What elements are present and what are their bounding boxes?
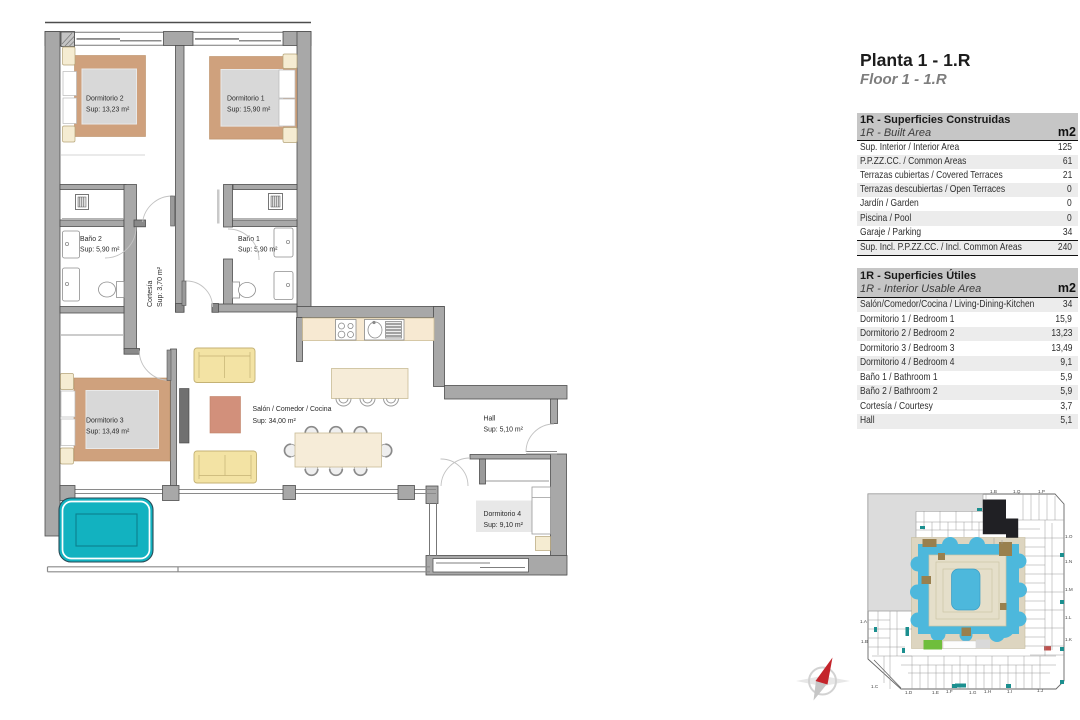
- svg-text:Sup: 13,49 m²: Sup: 13,49 m²: [86, 429, 130, 436]
- svg-text:Salón / Comedor / Cocina: Salón / Comedor / Cocina: [253, 406, 332, 413]
- svg-text:1.O: 1.O: [1065, 534, 1073, 539]
- svg-text:Sup: 13,23 m²: Sup: 13,23 m²: [86, 107, 130, 114]
- svg-text:1.F: 1.F: [946, 689, 953, 694]
- svg-text:1.M: 1.M: [1065, 587, 1073, 592]
- svg-text:1.K: 1.K: [1065, 637, 1073, 642]
- svg-text:Sup: 5,10 m²: Sup: 5,10 m²: [484, 427, 524, 434]
- svg-text:1.H: 1.H: [984, 689, 991, 694]
- svg-text:Sup: 15,90 m²: Sup: 15,90 m²: [227, 107, 271, 114]
- svg-text:Dormitorio 4: Dormitorio 4: [484, 511, 522, 518]
- svg-text:Dormitorio 3: Dormitorio 3: [86, 418, 124, 425]
- svg-text:1.J: 1.J: [1037, 688, 1043, 693]
- svg-text:Sup: 9,10 m²: Sup: 9,10 m²: [484, 522, 524, 529]
- svg-text:Hall: Hall: [484, 416, 496, 423]
- svg-text:1.N: 1.N: [1065, 559, 1072, 564]
- svg-text:Sup: 34,00 m²: Sup: 34,00 m²: [253, 418, 297, 425]
- svg-text:1.D: 1.D: [905, 690, 913, 695]
- svg-text:Baño 2: Baño 2: [80, 236, 102, 243]
- svg-text:1.A: 1.A: [860, 619, 868, 624]
- svg-text:1.I: 1.I: [1007, 689, 1012, 694]
- svg-text:Cortesía: Cortesía: [147, 280, 154, 307]
- svg-text:1.B: 1.B: [990, 489, 997, 494]
- svg-text:1.E: 1.E: [932, 690, 939, 695]
- svg-text:Dormitorio 2: Dormitorio 2: [86, 96, 124, 103]
- svg-text:1.P: 1.P: [1038, 489, 1045, 494]
- svg-text:Sup: 5,90 m²: Sup: 5,90 m²: [80, 247, 120, 254]
- svg-text:1.G: 1.G: [969, 690, 977, 695]
- svg-text:Dormitorio 1: Dormitorio 1: [227, 96, 265, 103]
- svg-text:Sup: 3,70 m²: Sup: 3,70 m²: [157, 266, 164, 307]
- svg-text:1.L: 1.L: [1065, 615, 1072, 620]
- svg-text:1.B: 1.B: [861, 639, 868, 644]
- svg-text:1.C: 1.C: [871, 684, 879, 689]
- svg-text:1.Q: 1.Q: [1013, 489, 1021, 494]
